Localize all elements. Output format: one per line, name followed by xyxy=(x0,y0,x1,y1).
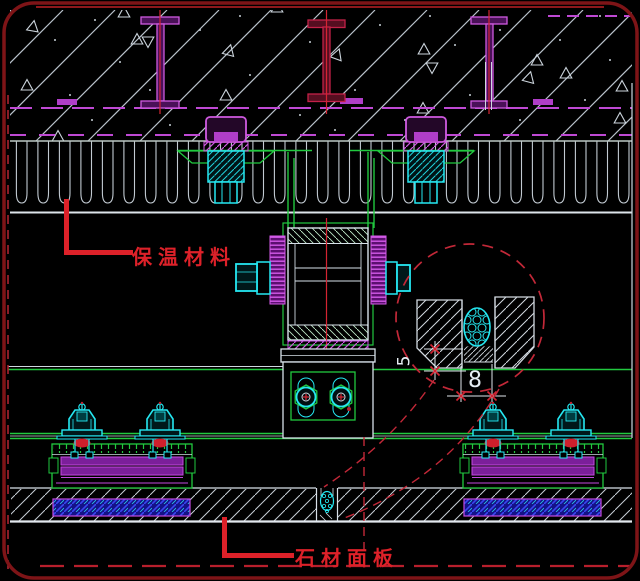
sealant-depth-dimension: 5 xyxy=(394,356,414,367)
insulation-label: 保温材料 xyxy=(132,241,236,270)
main-connector-box xyxy=(236,218,410,350)
cad-canvas: 保温材料 石材面板 5 8 xyxy=(0,0,640,581)
joint-width-dimension: 8 xyxy=(468,368,482,393)
backer-rod xyxy=(463,308,491,348)
stone-panel-leader xyxy=(222,517,294,558)
embedded-blue-strip xyxy=(53,499,190,516)
embedded-blue-strip xyxy=(464,499,601,516)
concrete-slab-hatch xyxy=(0,2,640,142)
lower-stack xyxy=(281,341,375,438)
stone-panel-label: 石材面板 xyxy=(295,542,399,571)
aggregate-dots xyxy=(54,15,611,131)
cad-drawing xyxy=(0,0,640,581)
insulation-band xyxy=(10,141,632,213)
sealant xyxy=(464,346,493,362)
embed-phantom-lines xyxy=(10,16,632,135)
